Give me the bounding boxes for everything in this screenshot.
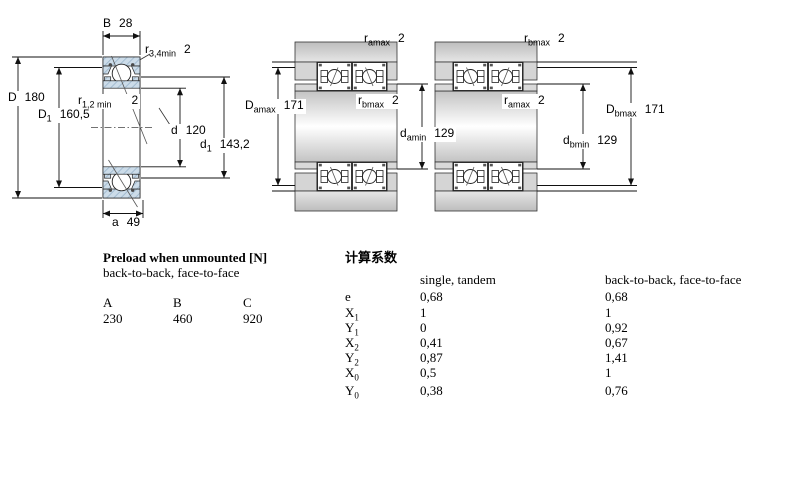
dim-label-rbmax-right: rbmax2	[522, 32, 567, 47]
dim-label-D: D180	[6, 91, 47, 106]
dim-label-damin: damin129	[398, 127, 456, 142]
preload-title: Preload when unmounted [N]	[103, 250, 267, 265]
dim-label-rbmax-left: rbmax2	[356, 94, 401, 109]
dim-label-D1: D1160,5	[36, 108, 92, 123]
dim-label-ramax-left: ramax2	[362, 32, 407, 47]
factors-row-Y1: Y1 0 0,92	[0, 320, 800, 335]
face-to-face-drawing	[435, 42, 637, 211]
dim-label-Dbmax: Dbmax171	[604, 103, 667, 118]
factors-row-Y2: Y2 0,87 1,41	[0, 350, 800, 365]
dim-label-a: a49	[110, 216, 142, 231]
factors-row-X2: X2 0,41 0,67	[0, 335, 800, 350]
dim-label-ramax-right: ramax2	[502, 94, 547, 109]
dim-label-d1: d1143,2	[198, 138, 252, 153]
factors-row-Y0: Y0 0,38 0,76	[0, 383, 800, 398]
dim-label-B: B28	[101, 17, 134, 32]
factors-title: 计算系数	[345, 250, 397, 265]
dim-label-r34min: r3,4min2	[143, 43, 193, 58]
factors-row-e: e 0,68 0,68	[0, 289, 800, 304]
dim-label-dbmin: dbmin129	[561, 134, 619, 149]
factors-col-single: single, tandem	[420, 272, 496, 287]
datasheet-page: B28 r3,4min2 D180 D1160,5 r1,2 min2 d120…	[0, 0, 800, 500]
preload-subtitle: back-to-back, face-to-face	[103, 265, 239, 280]
factors-row-X0: X0 0,5 1	[0, 365, 800, 380]
dim-label-r12min: r1,2 min2	[76, 94, 140, 109]
factors-row-X1: X1 1 1	[0, 305, 800, 320]
dim-label-Damax: Damax171	[243, 99, 306, 114]
factors-col-paired: back-to-back, face-to-face	[605, 272, 741, 287]
